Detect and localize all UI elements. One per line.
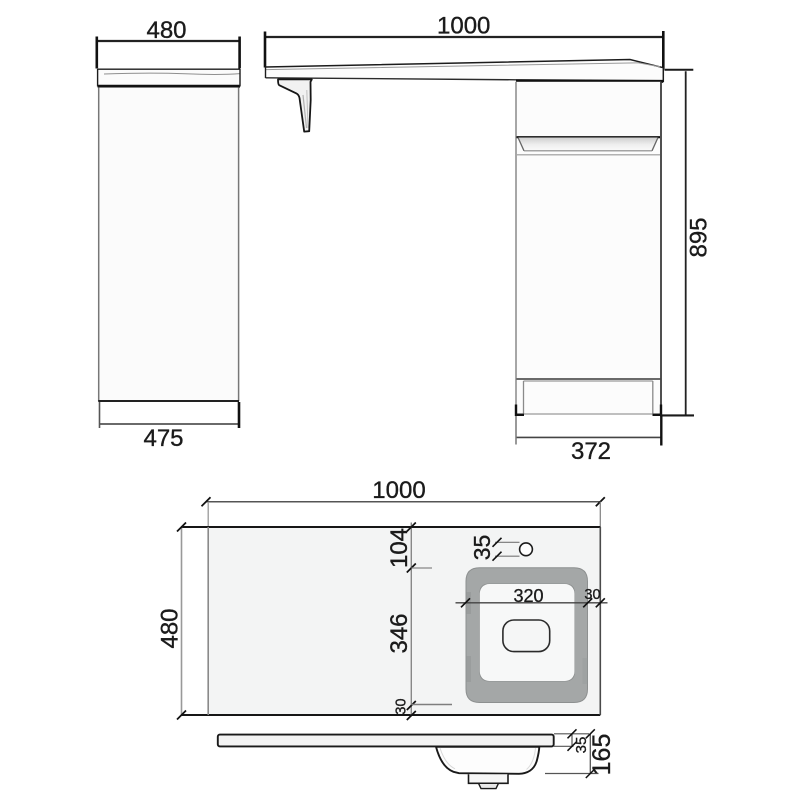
- svg-text:346: 346: [386, 613, 413, 653]
- svg-text:1000: 1000: [437, 13, 490, 40]
- svg-text:30: 30: [394, 698, 410, 714]
- svg-text:165: 165: [588, 734, 616, 776]
- svg-text:35: 35: [469, 535, 495, 561]
- svg-text:372: 372: [571, 438, 611, 465]
- svg-text:475: 475: [143, 425, 183, 452]
- svg-text:1000: 1000: [372, 477, 425, 504]
- svg-text:30: 30: [584, 587, 600, 603]
- svg-text:480: 480: [146, 17, 186, 44]
- svg-text:104: 104: [386, 528, 413, 568]
- svg-text:320: 320: [513, 586, 543, 606]
- svg-text:480: 480: [157, 608, 184, 648]
- svg-text:895: 895: [686, 217, 713, 257]
